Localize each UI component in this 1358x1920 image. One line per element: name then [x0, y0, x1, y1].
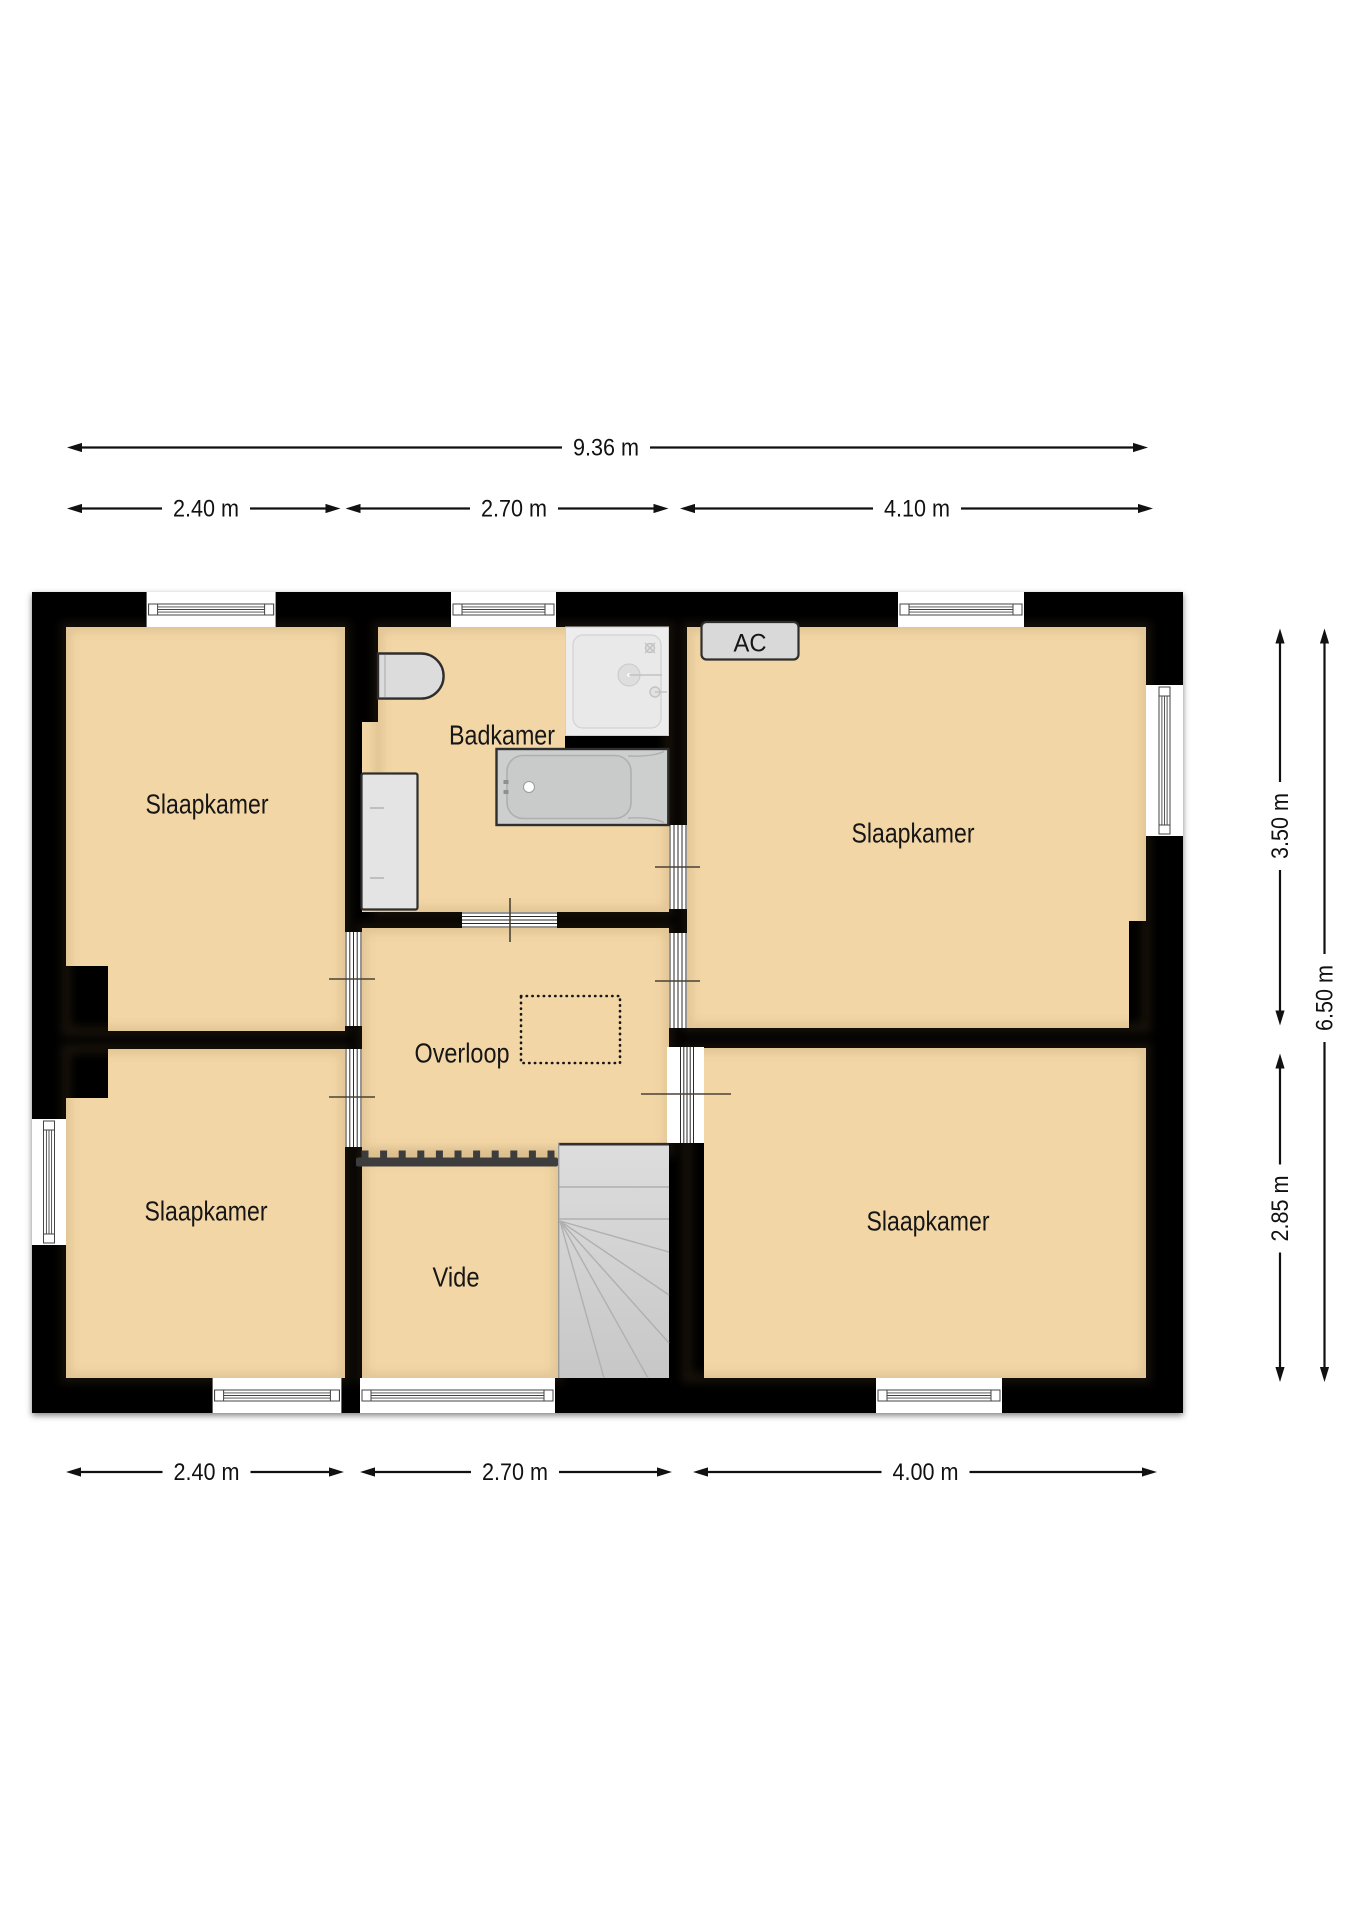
svg-text:Slaapkamer: Slaapkamer: [146, 789, 269, 820]
svg-text:2.40 m: 2.40 m: [173, 497, 239, 523]
svg-text:Slaapkamer: Slaapkamer: [145, 1196, 268, 1227]
svg-text:Slaapkamer: Slaapkamer: [867, 1206, 990, 1237]
svg-text:3.50 m: 3.50 m: [1268, 793, 1294, 859]
svg-text:Badkamer: Badkamer: [449, 720, 555, 751]
svg-text:9.36 m: 9.36 m: [573, 436, 639, 462]
svg-text:Slaapkamer: Slaapkamer: [852, 818, 975, 849]
svg-text:Overloop: Overloop: [415, 1038, 510, 1069]
svg-text:2.40 m: 2.40 m: [174, 1460, 240, 1486]
svg-text:2.70 m: 2.70 m: [482, 1460, 548, 1486]
svg-text:AC: AC: [734, 630, 767, 658]
svg-text:Vide: Vide: [433, 1262, 480, 1293]
svg-text:4.10 m: 4.10 m: [884, 497, 950, 523]
svg-text:2.85 m: 2.85 m: [1268, 1176, 1294, 1242]
svg-text:4.00 m: 4.00 m: [893, 1460, 959, 1486]
svg-text:2.70 m: 2.70 m: [481, 497, 547, 523]
svg-text:6.50 m: 6.50 m: [1313, 965, 1339, 1031]
